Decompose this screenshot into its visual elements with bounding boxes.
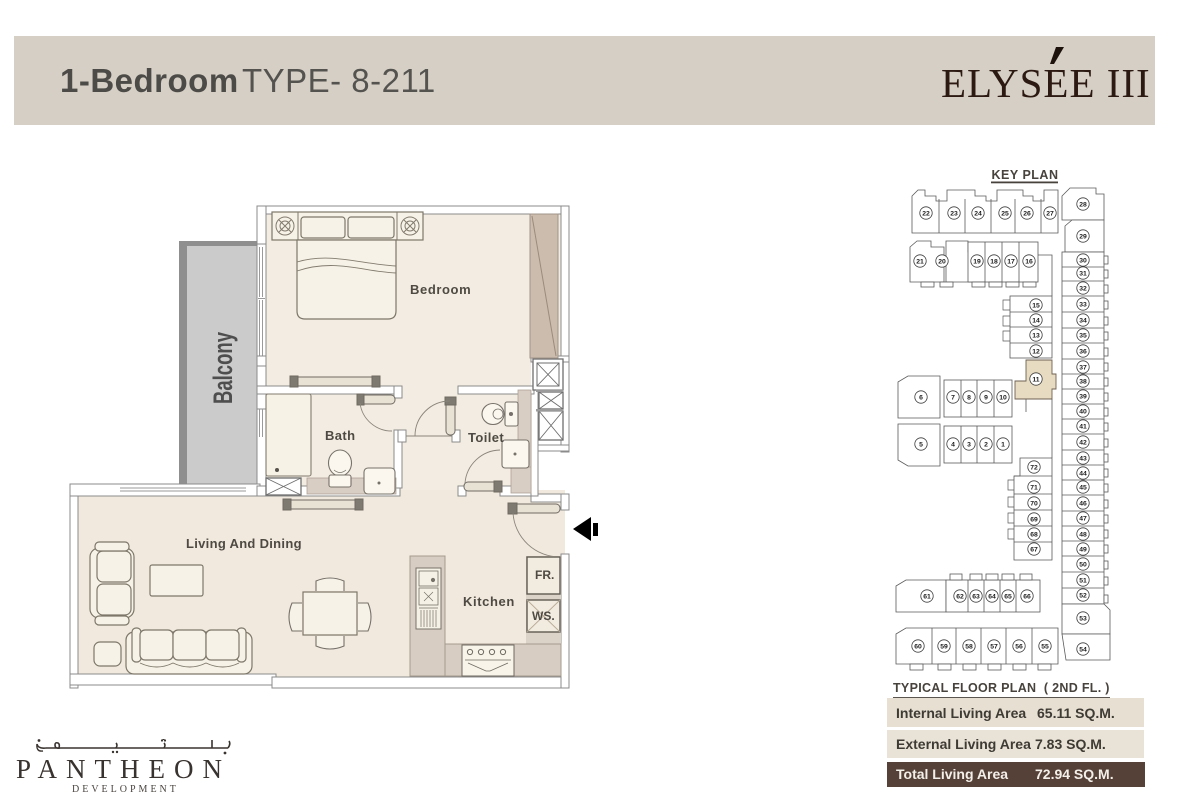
svg-text:18: 18 xyxy=(990,258,998,265)
svg-text:19: 19 xyxy=(973,258,981,265)
svg-text:45: 45 xyxy=(1079,484,1087,491)
svg-text:Living And Dining: Living And Dining xyxy=(186,536,302,551)
svg-text:6: 6 xyxy=(919,394,923,401)
svg-text:70: 70 xyxy=(1030,500,1038,507)
svg-text:3: 3 xyxy=(967,441,971,448)
svg-text:62: 62 xyxy=(956,593,964,600)
svg-text:26: 26 xyxy=(1023,210,1031,217)
svg-text:27: 27 xyxy=(1046,210,1054,217)
svg-text:28: 28 xyxy=(1079,201,1087,208)
svg-text:WS.: WS. xyxy=(532,609,555,623)
svg-text:14: 14 xyxy=(1032,317,1040,324)
svg-text:44: 44 xyxy=(1079,470,1087,477)
svg-text:46: 46 xyxy=(1079,500,1087,507)
svg-text:Toilet: Toilet xyxy=(468,430,504,445)
svg-text:63: 63 xyxy=(972,593,980,600)
svg-text:42: 42 xyxy=(1079,439,1087,446)
svg-text:10: 10 xyxy=(999,394,1007,401)
svg-text:21: 21 xyxy=(916,258,924,265)
svg-text:30: 30 xyxy=(1079,257,1087,264)
svg-text:24: 24 xyxy=(974,210,982,217)
svg-text:43: 43 xyxy=(1079,455,1087,462)
svg-text:5: 5 xyxy=(919,441,923,448)
svg-text:47: 47 xyxy=(1079,515,1087,522)
svg-text:9: 9 xyxy=(984,394,988,401)
svg-text:20: 20 xyxy=(938,258,946,265)
svg-text:69: 69 xyxy=(1030,516,1038,523)
svg-text:64: 64 xyxy=(988,593,996,600)
svg-text:Kitchen: Kitchen xyxy=(463,594,515,609)
svg-text:7: 7 xyxy=(951,394,955,401)
svg-text:53: 53 xyxy=(1079,615,1087,622)
svg-text:51: 51 xyxy=(1079,577,1087,584)
svg-text:41: 41 xyxy=(1079,423,1087,430)
svg-text:48: 48 xyxy=(1079,531,1087,538)
svg-text:65: 65 xyxy=(1004,593,1012,600)
svg-text:37: 37 xyxy=(1079,364,1087,371)
svg-text:59: 59 xyxy=(940,643,948,650)
svg-text:32: 32 xyxy=(1079,285,1087,292)
svg-text:Bedroom: Bedroom xyxy=(410,282,471,297)
svg-text:68: 68 xyxy=(1030,531,1038,538)
svg-text:67: 67 xyxy=(1030,546,1038,553)
svg-text:33: 33 xyxy=(1079,301,1087,308)
svg-text:34: 34 xyxy=(1079,317,1087,324)
svg-text:25: 25 xyxy=(1001,210,1009,217)
svg-text:35: 35 xyxy=(1079,332,1087,339)
svg-text:31: 31 xyxy=(1079,270,1087,277)
svg-text:61: 61 xyxy=(923,593,931,600)
svg-text:58: 58 xyxy=(965,643,973,650)
svg-text:36: 36 xyxy=(1079,348,1087,355)
svg-text:57: 57 xyxy=(990,643,998,650)
svg-text:29: 29 xyxy=(1079,233,1087,240)
svg-text:2: 2 xyxy=(984,441,988,448)
svg-text:16: 16 xyxy=(1025,258,1033,265)
svg-text:52: 52 xyxy=(1079,592,1087,599)
svg-text:50: 50 xyxy=(1079,561,1087,568)
svg-text:49: 49 xyxy=(1079,546,1087,553)
svg-text:KEY PLAN: KEY PLAN xyxy=(992,168,1059,182)
svg-text:23: 23 xyxy=(950,210,958,217)
svg-text:1: 1 xyxy=(1001,441,1005,448)
svg-text:Balcony: Balcony xyxy=(208,332,238,404)
svg-text:Bath: Bath xyxy=(325,428,356,443)
svg-text:56: 56 xyxy=(1015,643,1023,650)
svg-text:66: 66 xyxy=(1023,593,1031,600)
svg-text:39: 39 xyxy=(1079,393,1087,400)
svg-text:60: 60 xyxy=(914,643,922,650)
svg-text:17: 17 xyxy=(1007,258,1015,265)
svg-text:54: 54 xyxy=(1079,646,1087,653)
svg-text:11: 11 xyxy=(1032,376,1039,383)
svg-text:13: 13 xyxy=(1032,332,1040,339)
svg-text:15: 15 xyxy=(1032,302,1040,309)
svg-text:FR.: FR. xyxy=(535,568,554,582)
svg-text:8: 8 xyxy=(967,394,971,401)
svg-text:38: 38 xyxy=(1079,378,1087,385)
svg-text:40: 40 xyxy=(1079,408,1087,415)
svg-text:55: 55 xyxy=(1041,643,1049,650)
svg-text:4: 4 xyxy=(951,441,955,448)
svg-text:22: 22 xyxy=(922,210,930,217)
svg-text:71: 71 xyxy=(1030,484,1038,491)
svg-text:12: 12 xyxy=(1032,348,1040,355)
svg-text:72: 72 xyxy=(1030,464,1038,471)
